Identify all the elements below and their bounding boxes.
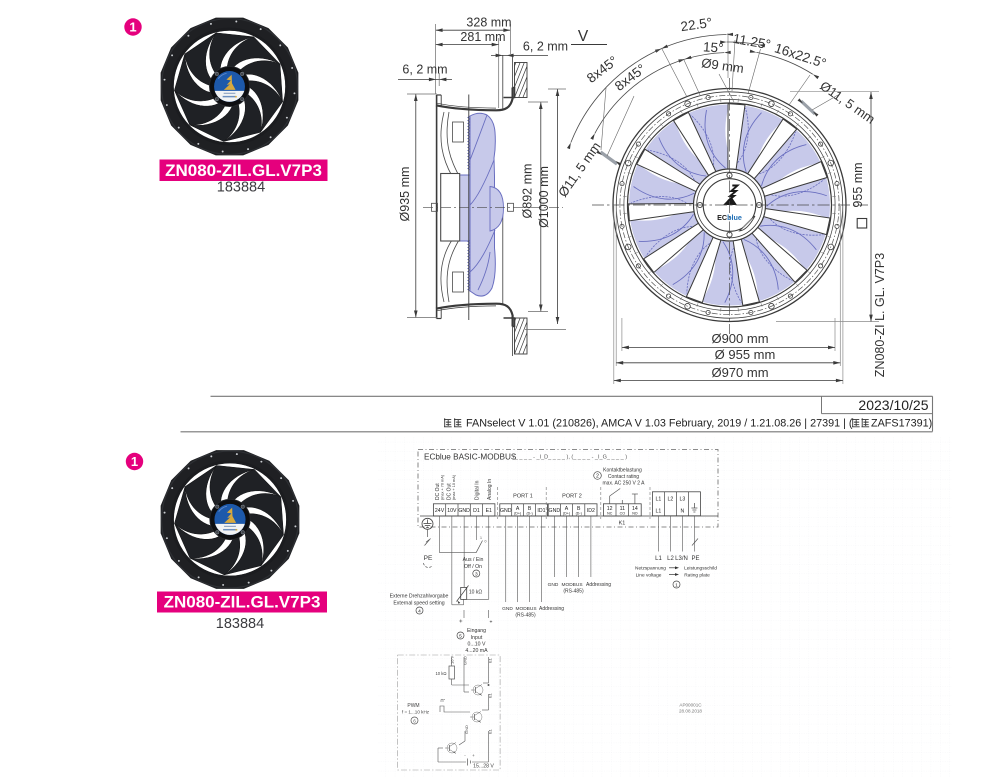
svg-text:183884: 183884	[217, 180, 265, 196]
svg-text:External speed setting: External speed setting	[393, 601, 444, 607]
svg-text:GND: GND	[502, 606, 513, 612]
svg-text:L1: L1	[656, 497, 662, 503]
svg-text:ECblue BASIC-MODBUS: ECblue BASIC-MODBUS	[424, 453, 517, 462]
svg-text:1: 1	[131, 454, 138, 469]
svg-text:Ø9 mm: Ø9 mm	[700, 55, 744, 76]
svg-text:4...20 mA: 4...20 mA	[465, 648, 488, 654]
svg-text:AP00001C: AP00001C	[679, 703, 702, 708]
svg-text:Addressing: Addressing	[586, 582, 611, 588]
svg-text:Netzspannung: Netzspannung	[635, 566, 666, 572]
svg-text:max. AC 250 V 2 A: max. AC 250 V 2 A	[603, 481, 646, 487]
svg-text:ID2: ID2	[587, 508, 595, 514]
svg-text:(RS-485): (RS-485)	[515, 613, 536, 619]
svg-text:(D+): (D+)	[514, 511, 521, 515]
svg-text:+: +	[472, 753, 475, 758]
svg-text:955 mm: 955 mm	[851, 162, 865, 207]
svg-text:Line voltage: Line voltage	[636, 572, 662, 578]
svg-text:Analog In: Analog In	[487, 479, 493, 500]
svg-text:(RS-485): (RS-485)	[563, 589, 584, 595]
svg-text:10 kΩ: 10 kΩ	[435, 671, 446, 676]
svg-text:Ø11, 5 mm: Ø11, 5 mm	[817, 78, 877, 127]
svg-text:K1: K1	[619, 521, 626, 527]
svg-text:PORT 1: PORT 1	[513, 494, 533, 500]
svg-text:GND: GND	[463, 656, 468, 665]
svg-text:GND: GND	[549, 508, 561, 514]
svg-text:6, 2 mm: 6, 2 mm	[402, 63, 447, 77]
svg-text:328 mm: 328 mm	[466, 16, 511, 30]
svg-text:Ø11, 5 mm: Ø11, 5 mm	[555, 139, 604, 199]
svg-text:Contact rating: Contact rating	[608, 474, 639, 480]
svg-text:Rating plate: Rating plate	[684, 572, 710, 578]
svg-text:3: 3	[475, 572, 478, 578]
svg-text:0: 0	[485, 540, 487, 544]
svg-text:6, 2 mm: 6, 2 mm	[523, 40, 568, 54]
svg-text:ZN080-ZIL.GL.V7P3: ZN080-ZIL.GL.V7P3	[165, 161, 322, 180]
svg-text:4: 4	[418, 609, 421, 615]
svg-text:L3/N: L3/N	[675, 556, 688, 562]
svg-text:ZAFS17391): ZAFS17391)	[871, 417, 932, 429]
svg-text:ZN080-ZI L. GL. V7P3: ZN080-ZI L. GL. V7P3	[873, 253, 887, 377]
svg-text:NC: NC	[607, 511, 613, 515]
svg-text:L1: L1	[655, 556, 662, 562]
svg-text:PORT 2: PORT 2	[562, 494, 582, 500]
svg-text:E1: E1	[486, 508, 492, 514]
svg-text:GND: GND	[548, 582, 559, 588]
svg-text:2: 2	[596, 474, 599, 480]
svg-text:+: +	[490, 620, 493, 626]
svg-text:L3: L3	[680, 497, 686, 503]
svg-text:NO: NO	[632, 511, 638, 515]
svg-text:Addressing: Addressing	[539, 606, 564, 612]
svg-text:CO: CO	[620, 511, 626, 515]
svg-text:6: 6	[413, 719, 416, 724]
svg-text:2023/10/25: 2023/10/25	[858, 397, 928, 413]
svg-text:1: 1	[480, 536, 482, 540]
svg-text:L2: L2	[667, 556, 674, 562]
svg-text:V: V	[578, 28, 589, 45]
svg-text:10 kΩ: 10 kΩ	[469, 590, 482, 596]
svg-text:L2: L2	[668, 497, 674, 503]
svg-text:PE: PE	[424, 555, 433, 562]
svg-text:Eingang: Eingang	[467, 628, 486, 634]
svg-text:MODBUS: MODBUS	[515, 606, 536, 612]
svg-text:Leistungsschild: Leistungsschild	[684, 566, 717, 572]
svg-text:1: 1	[129, 20, 136, 35]
svg-text:Ø935 mm: Ø935 mm	[398, 167, 412, 222]
svg-text:Ø970 mm: Ø970 mm	[711, 365, 768, 380]
svg-text:(D+): (D+)	[563, 511, 570, 515]
svg-text:PWM: PWM	[407, 703, 419, 709]
svg-text:GND: GND	[458, 508, 470, 514]
svg-text:N: N	[681, 509, 685, 515]
svg-text:1: 1	[675, 583, 678, 589]
svg-text:Ø892 mm: Ø892 mm	[521, 164, 535, 219]
svg-text:24V: 24V	[435, 508, 445, 514]
svg-text:15...28 V: 15...28 V	[473, 764, 494, 770]
svg-text:(D-): (D-)	[526, 511, 532, 515]
svg-text:281 mm: 281 mm	[460, 30, 505, 44]
svg-text:L1: L1	[656, 509, 662, 515]
svg-text:(max + 70 mA): (max + 70 mA)	[441, 474, 445, 500]
svg-text:11.25°: 11.25°	[732, 31, 772, 52]
svg-text:183884: 183884	[216, 616, 264, 632]
svg-text:(D-): (D-)	[576, 511, 582, 515]
svg-text:15°: 15°	[703, 39, 724, 55]
svg-text:Off / On: Off / On	[464, 564, 482, 570]
svg-text:Ø 955 mm: Ø 955 mm	[715, 347, 776, 362]
svg-text:PE: PE	[691, 556, 699, 562]
svg-text:5: 5	[459, 634, 462, 640]
svg-text:(max + 10 mA): (max + 10 mA)	[452, 474, 456, 500]
svg-text:GND: GND	[500, 508, 512, 514]
svg-text:ID1: ID1	[537, 508, 545, 514]
svg-text:0...10 V: 0...10 V	[468, 641, 486, 647]
svg-text:FANselect V 1.01 (210826), AMC: FANselect V 1.01 (210826), AMCA V 1.03 F…	[466, 417, 853, 429]
svg-text:Externe Drehzahlvorgabe: Externe Drehzahlvorgabe	[390, 594, 449, 600]
svg-text:28.08.2018: 28.08.2018	[679, 709, 702, 714]
svg-text:16x22.5°: 16x22.5°	[773, 40, 828, 71]
svg-text:Kontaktbelastung: Kontaktbelastung	[603, 468, 642, 474]
svg-text:10V: 10V	[447, 508, 457, 514]
svg-text:22.5°: 22.5°	[680, 15, 713, 34]
svg-text:ZN080-ZIL.GL.V7P3: ZN080-ZIL.GL.V7P3	[164, 593, 321, 612]
svg-text:E1: E1	[488, 692, 493, 698]
svg-text:Aus / Ein: Aus / Ein	[463, 557, 484, 563]
svg-text:Ø1000 mm: Ø1000 mm	[537, 166, 551, 228]
svg-text:Ø900 mm: Ø900 mm	[711, 331, 768, 346]
svg-text:Digital In: Digital In	[475, 480, 481, 500]
svg-text:Input: Input	[471, 635, 483, 641]
svg-text:(_ _ _ _ - _I_D_ _ _ _ ), (_ _: (_ _ _ _ - _I_D_ _ _ _ ), (_ _ _ _ - _I_…	[513, 455, 627, 461]
svg-text:f = 1...10 kHz: f = 1...10 kHz	[402, 710, 430, 715]
svg-text:MODBUS: MODBUS	[561, 582, 582, 588]
svg-text:D1: D1	[473, 508, 480, 514]
